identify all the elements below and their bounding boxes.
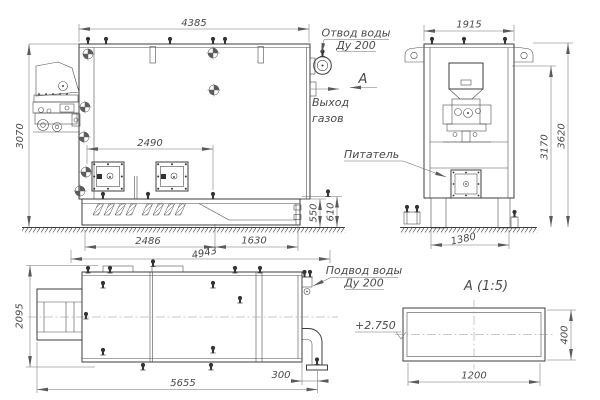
elevation-flag-icon [396,332,406,339]
bolt-icon [83,312,88,319]
bolt-icon [512,210,517,217]
water-outlet-label-line1: Отвод воды [322,27,391,40]
water-outlet-callout: Отвод воды Ду 200 [322,27,391,55]
dim-duct-height: 400 [560,325,571,344]
bolt-icon [210,37,215,44]
water-inlet-label-line1: Подвод воды [326,264,403,277]
dim-side-total-height: 3620 [557,123,568,148]
feeder-callout: Питатель [344,148,446,177]
plan-feeder-box [37,289,82,340]
grate-strips [93,204,137,215]
target-mark-icon [80,166,93,179]
dim-duct-width: 1200 [461,371,486,382]
side-hopper-feeder [443,63,491,142]
front-view: 4385 3070 2490 2486 1630 4943 550 610 [15,18,391,263]
dim-doors-span: 2490 [137,138,162,149]
dim-plan-depth: 2095 [15,303,26,328]
section-a-dimensions: 1200 400 [408,310,576,386]
access-door [92,162,124,191]
bolt-icon [167,37,172,44]
section-a-duct [395,300,553,369]
front-base-frame [82,189,342,225]
technical-drawing-page: 4385 3070 2490 2486 1630 4943 550 610 [0,0,600,400]
bolt-icon [210,346,215,353]
dim-front-height: 3070 [15,123,26,148]
side-view: 1915 1380 3170 3620 Питатель [344,20,573,250]
water-inlet-callout: Подвод воды Ду 200 [313,264,403,290]
feeder-label: Питатель [344,148,399,161]
drawing-canvas: 4385 3070 2490 2486 1630 4943 550 610 [0,0,600,400]
bolt-icon [222,37,227,44]
target-mark-icon [208,84,221,97]
grate-hatch [103,266,133,272]
front-feeder-machine [33,62,80,132]
bolt-icon [145,192,150,199]
plan-view: 2095 5655 300 Подвод воды Ду 200 [15,259,403,393]
section-a-view: А (1:5) 1200 400 +2.750 [355,279,576,386]
target-mark-icon [79,101,92,114]
dim-base-right: 1630 [241,236,266,247]
bolt-icon [302,270,307,277]
elevation-value: +2.750 [355,319,396,332]
target-mark-icon [207,47,220,60]
bolt-icon [210,281,215,288]
grate-hatch [152,266,183,272]
bolt-icon [85,37,90,44]
lifting-lug [514,47,533,62]
section-a-title: А (1:5) [463,279,508,294]
dim-front-width: 4385 [181,18,206,29]
bolt-icon [414,205,419,212]
dim-plan-length: 5655 [170,378,195,389]
bolt-icon [404,205,409,212]
bolt-icon [429,37,434,44]
plan-inlet-stub [302,270,313,295]
bolt-icon [150,259,155,266]
bolt-icon [100,192,105,199]
side-door [451,170,481,198]
gas-exit-label-line2: газов [312,112,344,125]
side-ground [400,228,537,233]
bolt-icon [314,357,319,364]
front-access-doors [92,162,188,191]
bolt-icon [320,49,325,56]
dim-base-height: 550 [309,203,320,222]
bolt-icon [100,281,105,288]
bolt-icon [140,363,145,370]
water-outlet-label-line2: Ду 200 [335,39,376,52]
bolt-icon [100,348,105,355]
section-cut-letter: А [358,72,368,87]
bolt-icon [237,296,242,303]
roof-slot [150,47,156,64]
plan-elbow-pipe [302,329,328,371]
gas-exit-label-line1: Выход [312,96,349,109]
bolt-icon [103,37,108,44]
inlet-stub-bolt-icon [325,189,330,196]
plan-dimensions: 2095 5655 300 [15,266,328,394]
target-mark-icon [82,48,95,61]
dim-inlet-height: 610 [326,202,337,221]
grate-strips [142,204,186,215]
bolt-icon [502,37,507,44]
access-door [156,162,188,191]
elevation-mark: +2.750 [355,319,406,339]
gas-exit-callout: Выход газов [311,89,349,125]
dim-side-width: 1915 [456,20,481,31]
front-body [74,37,317,199]
front-dimensions: 4385 3070 2490 2486 1630 4943 550 610 [15,18,337,263]
side-dimensions: 1915 1380 3170 3620 [424,20,573,250]
front-ground [22,228,345,233]
dim-side-chamber-height: 3170 [540,134,551,159]
water-inlet-label-line2: Ду 200 [343,277,384,290]
dim-base-left: 2486 [135,236,160,247]
side-legs-fittings [404,198,518,228]
dim-pipe-offset: 300 [271,370,290,381]
bolt-icon [208,363,213,370]
plan-body [28,259,338,370]
section-cut-arrow: А [350,72,377,88]
bolt-icon [307,270,312,277]
lifting-lug [405,47,424,62]
target-mark-icon [74,185,87,198]
roof-slot [258,47,264,64]
bolt-icon [461,37,466,44]
bolt-icon [210,192,215,199]
water-outlet-flange [310,49,331,74]
